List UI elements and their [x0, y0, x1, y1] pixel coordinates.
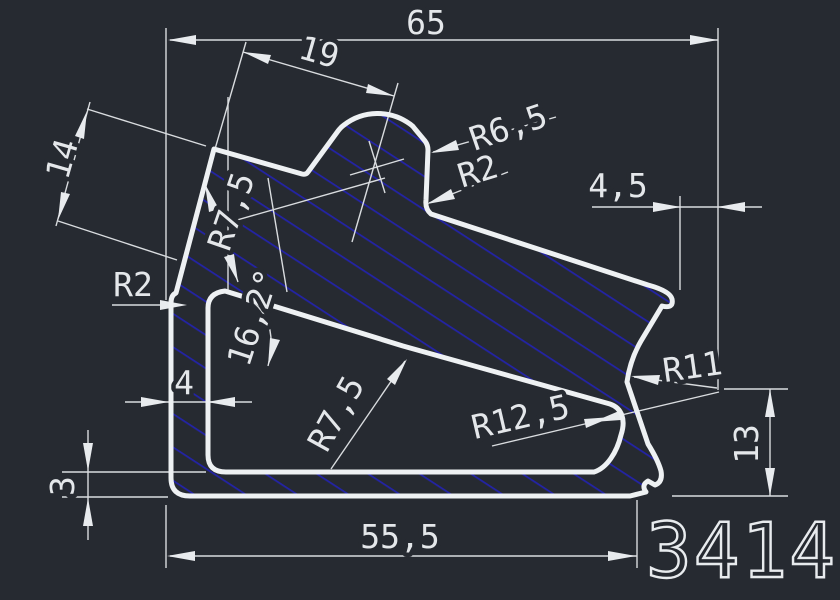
radius-notch: R11: [660, 343, 724, 390]
dim-left-wall: 4: [174, 363, 194, 402]
dim-right-height: 13: [727, 424, 766, 464]
radius-bump-top: R6,5: [464, 96, 552, 159]
cad-drawing: 65 19 14 R6,5 R2 4,5 R7,5 R2 16,2° 4 R7,…: [0, 0, 840, 600]
cad-viewport: 65 19 14 R6,5 R2 4,5 R7,5 R2 16,2° 4 R7,…: [0, 0, 840, 600]
dim-bottom-wall: 3: [43, 476, 82, 496]
dim-tip-to-edge: 4,5: [588, 166, 648, 205]
radius-inner-right: R12,5: [468, 387, 574, 447]
radius-inner-mid: R7,5: [300, 369, 373, 457]
dim-total-width: 65: [406, 3, 446, 42]
radius-bump-corner: R2: [453, 147, 502, 196]
part-number: 3414: [646, 506, 837, 595]
radius-left-corner: R2: [113, 265, 153, 304]
dim-bottom-width: 55,5: [360, 517, 439, 556]
